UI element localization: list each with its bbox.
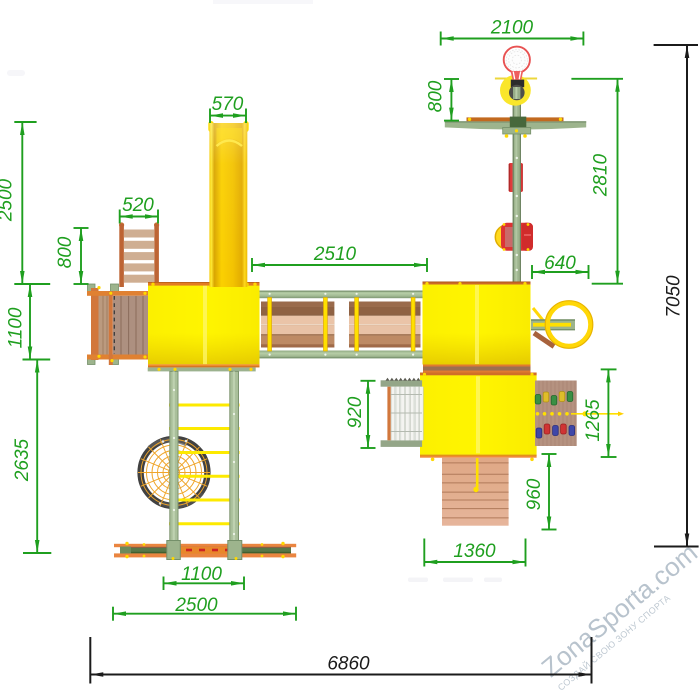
svg-text:570: 570 <box>212 94 244 115</box>
svg-text:2500: 2500 <box>174 595 218 616</box>
svg-text:1265: 1265 <box>583 399 604 442</box>
svg-text:960: 960 <box>524 478 545 510</box>
svg-text:2510: 2510 <box>313 244 357 265</box>
svg-text:2810: 2810 <box>591 153 612 197</box>
svg-text:1100: 1100 <box>181 564 222 585</box>
svg-text:520: 520 <box>122 195 154 216</box>
svg-text:920: 920 <box>345 396 366 428</box>
svg-text:2500: 2500 <box>0 178 17 222</box>
svg-text:1360: 1360 <box>453 541 496 562</box>
svg-text:2100: 2100 <box>490 18 534 39</box>
svg-text:800: 800 <box>426 80 447 112</box>
svg-text:640: 640 <box>544 253 576 274</box>
svg-text:6860: 6860 <box>327 654 370 675</box>
svg-text:2635: 2635 <box>12 438 33 482</box>
svg-text:7050: 7050 <box>664 275 685 318</box>
svg-text:800: 800 <box>55 236 76 268</box>
svg-text:1100: 1100 <box>6 307 27 348</box>
